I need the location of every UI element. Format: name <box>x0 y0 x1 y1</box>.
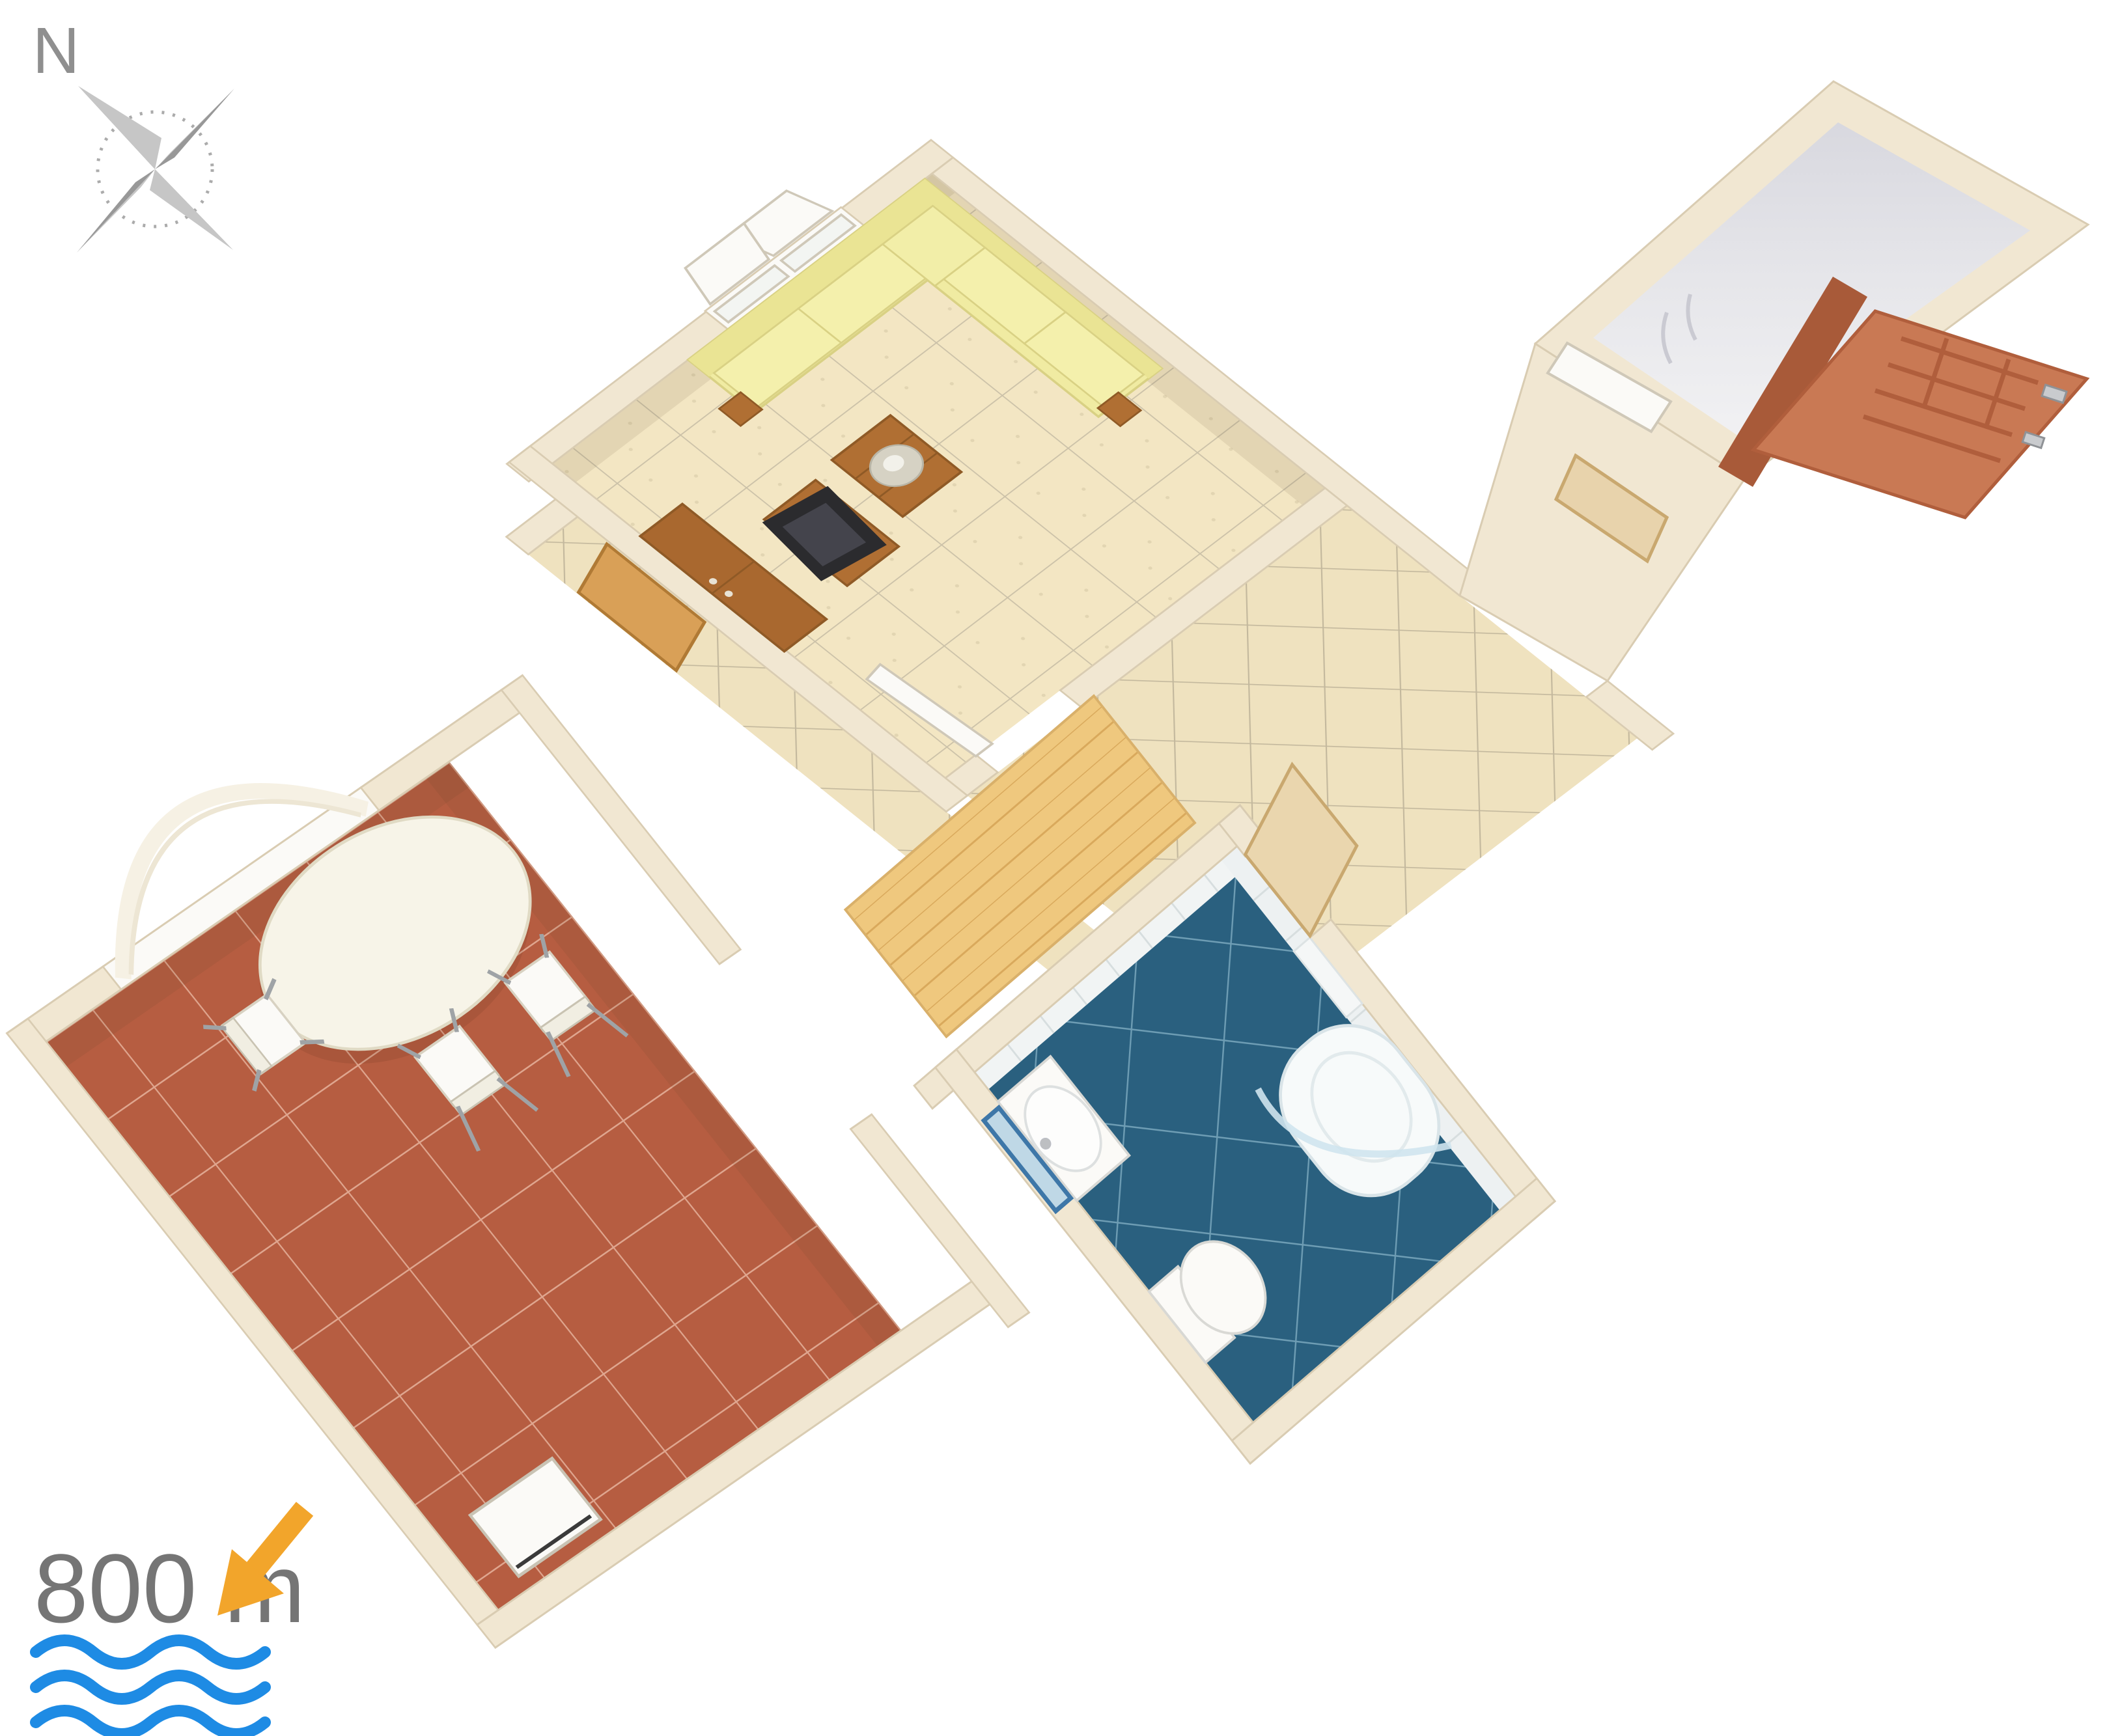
compass: N <box>33 14 234 253</box>
floor-plan-canvas: N <box>0 0 2120 1736</box>
north-label: N <box>33 14 79 87</box>
floor-plan-page: N <box>0 0 2120 1736</box>
waves-icon <box>36 1640 265 1734</box>
sea-distance-legend: 800 m <box>34 1509 305 1734</box>
